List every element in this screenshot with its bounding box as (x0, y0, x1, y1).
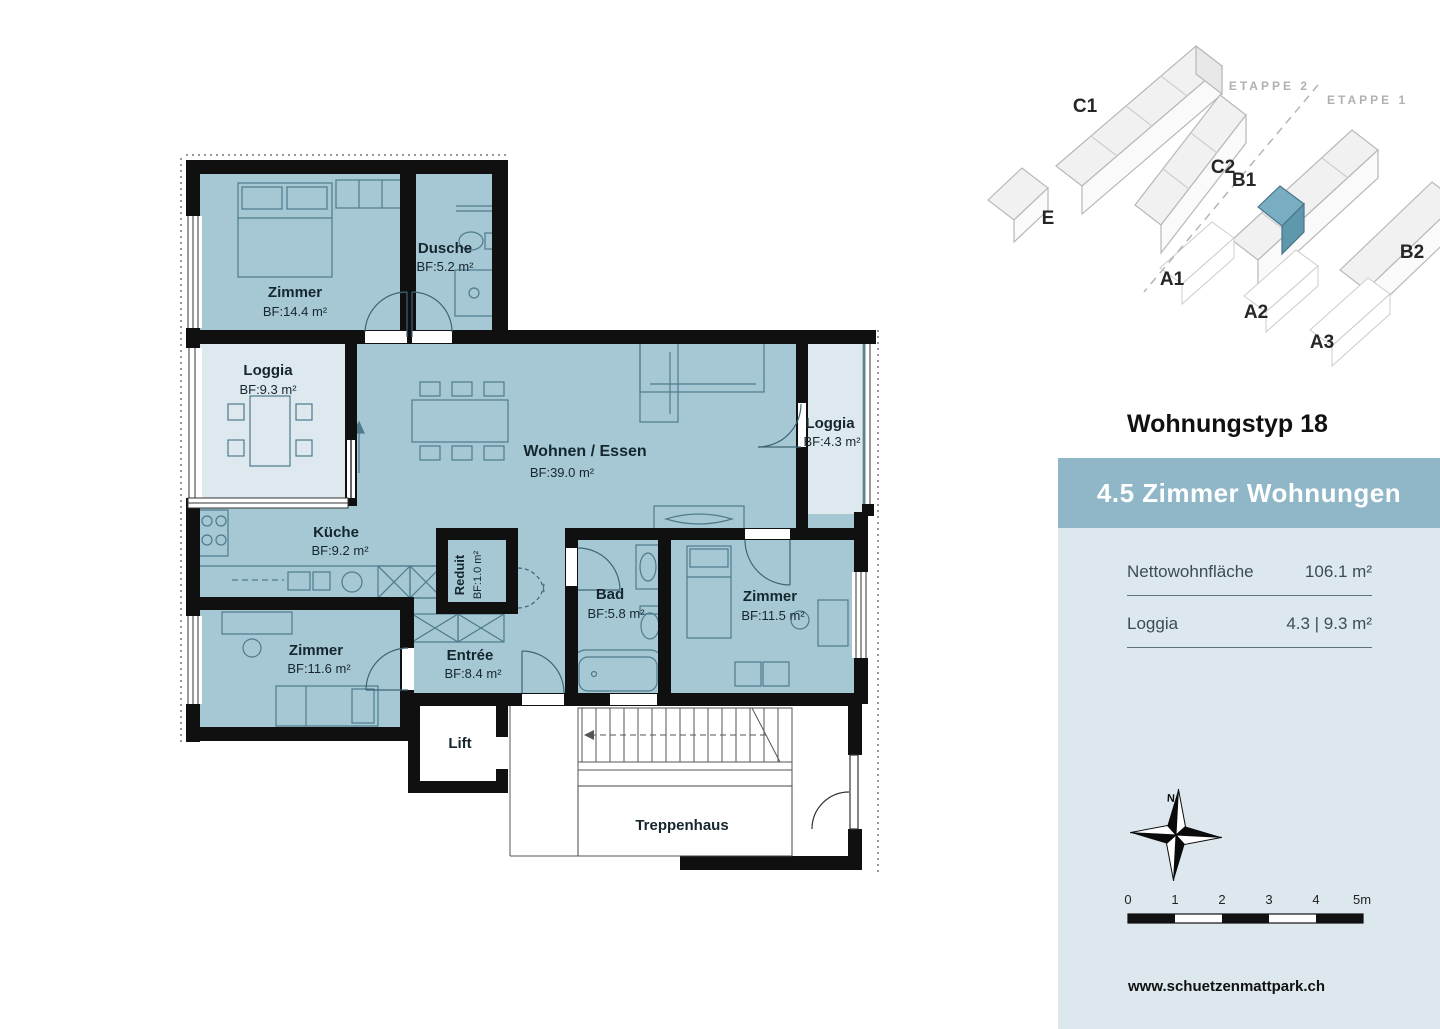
floorplan-sheet: Wohnungstyp 18 4.5 Zimmer Wohnungen Nett… (0, 0, 1440, 1029)
sideboard (654, 506, 744, 532)
room-area: BF:5.8 m² (587, 606, 645, 621)
table (250, 396, 290, 466)
walls (186, 160, 876, 870)
building-e (988, 168, 1048, 242)
chair (243, 639, 261, 657)
room-label: Lift (448, 735, 471, 752)
room-label: Loggia (805, 415, 855, 432)
room-label: Entrée (447, 647, 494, 664)
bathtub (572, 650, 664, 698)
highlighted-unit (1258, 186, 1304, 254)
room-label: Loggia (243, 362, 293, 379)
building-b1 (1232, 130, 1378, 288)
room-label: Wohnen / Essen (523, 443, 646, 460)
website-url: www.schuetzenmattpark.ch (1128, 978, 1325, 995)
room-labels: Zimmer BF:14.4 m² Dusche BF:5.2 m² Loggi… (239, 240, 861, 834)
room-area: BF:5.2 m² (416, 259, 474, 274)
building-a1 (1160, 222, 1234, 304)
info-panel: 4.5 Zimmer Wohnungen Nettowohnfläche 106… (1058, 458, 1440, 1029)
info-label: Loggia (1127, 614, 1178, 634)
building-label-c1: C1 (1073, 96, 1098, 117)
chair (791, 611, 809, 629)
info-label: Nettowohnfläche (1127, 562, 1254, 582)
washbasin (636, 545, 660, 589)
shower (455, 270, 493, 316)
info-row-nettowohnflaeche: Nettowohnfläche 106.1 m² (1127, 544, 1372, 596)
building-labels: C1 C2 B1 B2 E A1 A2 A3 (1042, 96, 1424, 353)
room-label: Zimmer (268, 284, 322, 301)
desk (222, 612, 292, 634)
room-area: BF:39.0 m² (530, 465, 595, 480)
room-area: BF:9.3 m² (239, 382, 297, 397)
building-c2 (1135, 95, 1246, 253)
building-label-b2: B2 (1400, 242, 1424, 263)
info-value: 106.1 m² (1305, 562, 1372, 582)
room-label: Küche (313, 524, 359, 541)
info-row-loggia: Loggia 4.3 | 9.3 m² (1127, 596, 1372, 648)
room-area: BF:4.3 m² (803, 434, 861, 449)
room-fills (190, 164, 866, 728)
sink (288, 572, 310, 590)
room-label: Bad (596, 586, 624, 603)
info-rows: Nettowohnfläche 106.1 m² Loggia 4.3 | 9.… (1058, 528, 1440, 648)
desk (818, 600, 848, 646)
toilet (641, 613, 659, 639)
apartment-type-header: 4.5 Zimmer Wohnungen (1058, 458, 1440, 528)
toilet (459, 232, 483, 250)
furniture (198, 180, 848, 726)
doors (365, 292, 858, 829)
building-label-c2: C2 (1211, 157, 1235, 178)
bed (687, 546, 731, 638)
building-a3 (1310, 278, 1390, 366)
sofa (640, 342, 764, 392)
stairs (510, 706, 792, 856)
room-area: BF:9.2 m² (311, 543, 369, 558)
dining-table (412, 400, 508, 442)
room-area: BF:1.0 m² (472, 551, 484, 600)
etappe-1-label: ETAPPE 1 (1327, 93, 1408, 107)
loggia-fills (196, 340, 862, 514)
room-area: BF:11.6 m² (287, 661, 351, 676)
building-label-a2: A2 (1244, 302, 1268, 323)
building-label-e: E (1042, 208, 1055, 229)
room-label: Reduit (452, 554, 467, 595)
stove (198, 510, 228, 556)
page-title: Wohnungstyp 18 (1127, 410, 1328, 439)
room-area: BF:14.4 m² (263, 304, 328, 319)
windows (184, 216, 870, 704)
loggia-left-floor (196, 344, 349, 500)
info-value: 4.3 | 9.3 m² (1286, 614, 1372, 634)
bed (238, 183, 332, 277)
building-a2 (1244, 250, 1318, 332)
kitchen-counter (198, 566, 442, 598)
wall-openings (347, 331, 862, 829)
room-area: BF:8.4 m² (444, 666, 502, 681)
loggia-right-floor (800, 340, 862, 514)
building-label-b1: B1 (1232, 170, 1257, 191)
room-label: Dusche (418, 240, 472, 257)
building-c1 (1056, 46, 1222, 214)
wardrobe (336, 180, 406, 208)
bed (276, 686, 378, 726)
boundary-lines (181, 155, 878, 872)
etappe-2-label: ETAPPE 2 (1229, 79, 1310, 93)
room-label: Zimmer (289, 642, 343, 659)
building-label-a3: A3 (1310, 332, 1334, 353)
building-b2 (1340, 182, 1440, 318)
floor-plan: Zimmer BF:14.4 m² Dusche BF:5.2 m² Loggi… (181, 155, 878, 872)
stair-block-floor (408, 700, 866, 872)
room-label: Treppenhaus (635, 817, 728, 834)
etappe-divider-line (1144, 85, 1318, 292)
site-plan: ETAPPE 2 ETAPPE 1 C1 C2 B1 B2 E A1 A2 A3 (988, 46, 1440, 366)
room-area: BF:11.5 m² (741, 608, 805, 623)
room-label: Zimmer (743, 588, 797, 605)
building-label-a1: A1 (1160, 269, 1185, 290)
